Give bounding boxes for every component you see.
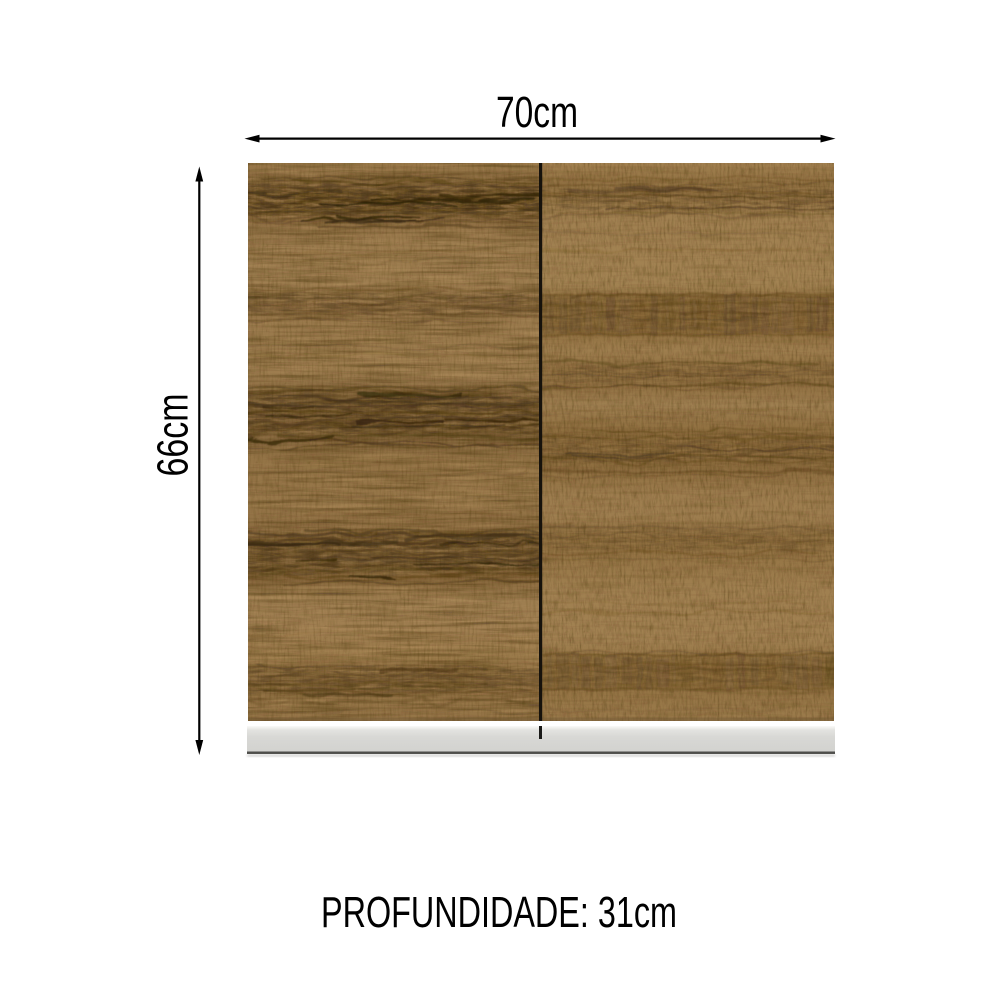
svg-text:70cm: 70cm	[496, 88, 578, 137]
svg-text:PROFUNDIDADE: 31cm: PROFUNDIDADE: 31cm	[321, 888, 677, 937]
svg-text:66cm: 66cm	[149, 394, 198, 477]
